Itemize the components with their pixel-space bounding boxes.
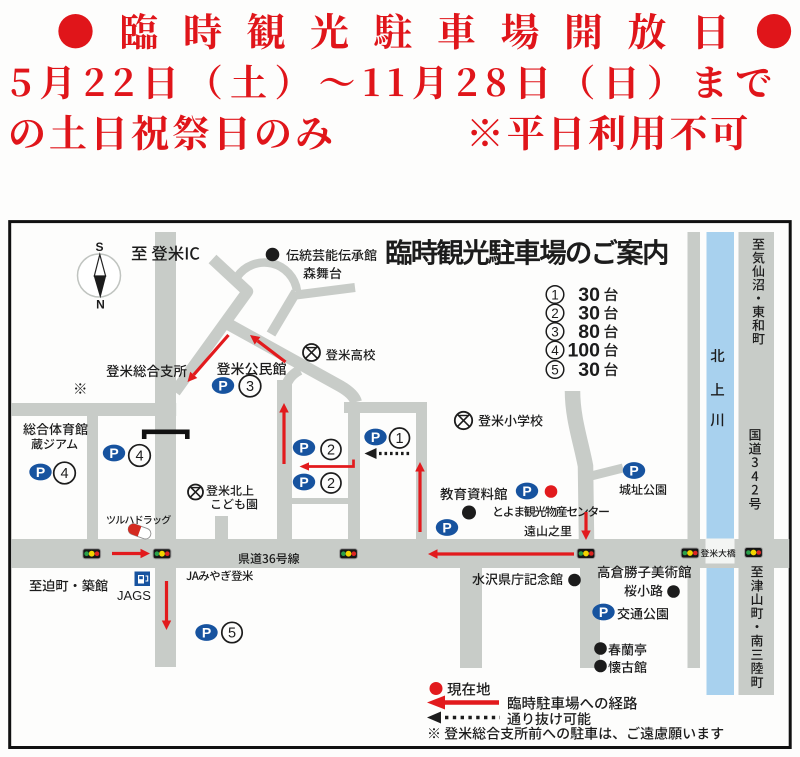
svg-text:高倉勝子美術館: 高倉勝子美術館 — [597, 561, 692, 581]
svg-text:P: P — [522, 483, 531, 499]
svg-text:遠山之里: 遠山之里 — [524, 523, 572, 540]
svg-text:P: P — [299, 440, 308, 456]
svg-text:P: P — [36, 464, 45, 480]
svg-text:JAみやぎ登米: JAみやぎ登米 — [186, 568, 254, 584]
svg-text:※: ※ — [73, 378, 88, 399]
svg-text:蔵ジアム: 蔵ジアム — [31, 436, 78, 453]
svg-text:P: P — [109, 445, 118, 461]
svg-text:登米小学校: 登米小学校 — [478, 411, 543, 430]
svg-text:3: 3 — [551, 324, 559, 339]
svg-text:至津山町・南三陸町: 至津山町・南三陸町 — [750, 562, 763, 691]
svg-text:P: P — [371, 429, 380, 445]
svg-text:教育資料館: 教育資料館 — [440, 483, 508, 503]
svg-text:4: 4 — [60, 466, 68, 482]
svg-text:N: N — [96, 298, 105, 312]
svg-text:北上川: 北上川 — [710, 345, 725, 430]
svg-text:登米大橋: 登米大橋 — [701, 547, 736, 560]
svg-text:とよま観光物産センター: とよま観光物産センター — [492, 503, 609, 520]
svg-text:2: 2 — [551, 306, 559, 321]
svg-text:臨時観光駐車場のご案内: 臨時観光駐車場のご案内 — [385, 231, 668, 271]
svg-text:の土日祝祭日のみ: の土日祝祭日のみ — [8, 103, 336, 158]
svg-text:●臨時観光駐車場開放日●: ●臨時観光駐車場開放日● — [56, 2, 800, 58]
svg-text:登米高校: 登米高校 — [326, 345, 377, 364]
svg-text:※ 登米総合支所前への駐車は、ご遠慮願います: ※ 登米総合支所前への駐車は、ご遠慮願います — [427, 724, 724, 744]
svg-text:※平日利用不可: ※平日利用不可 — [466, 103, 751, 158]
svg-text:P: P — [299, 474, 308, 490]
svg-text:5: 5 — [551, 362, 559, 377]
svg-text:5: 5 — [228, 626, 236, 642]
svg-text:現在地: 現在地 — [447, 679, 491, 700]
svg-text:春蘭亭: 春蘭亭 — [608, 640, 647, 659]
svg-text:至気仙沼・東和町: 至気仙沼・東和町 — [752, 234, 765, 348]
svg-text:城址公園: 城址公園 — [619, 481, 667, 498]
svg-text:30: 30 — [578, 359, 600, 381]
svg-text:5月22日（土）～11月28日（日）まで: 5月22日（土）～11月28日（日）まで — [10, 53, 779, 107]
svg-text:P: P — [629, 463, 638, 479]
svg-text:至迫町・築館: 至迫町・築館 — [29, 576, 108, 595]
svg-text:2: 2 — [327, 476, 335, 492]
svg-text:台: 台 — [604, 359, 619, 380]
svg-text:桜小路: 桜小路 — [624, 581, 663, 600]
svg-text:県道36号線: 県道36号線 — [238, 550, 300, 567]
svg-text:至 登米IC: 至 登米IC — [131, 241, 200, 265]
svg-text:P: P — [202, 625, 211, 641]
svg-text:1: 1 — [395, 431, 403, 447]
svg-text:P: P — [442, 520, 451, 536]
svg-text:4: 4 — [135, 449, 143, 465]
svg-text:伝統芸能伝承館: 伝統芸能伝承館 — [286, 245, 377, 264]
svg-text:ツルハドラッグ: ツルハドラッグ — [106, 512, 171, 527]
svg-text:こども園: こども園 — [210, 496, 258, 513]
svg-text:JAGS: JAGS — [117, 588, 151, 603]
svg-text:S: S — [95, 240, 103, 254]
svg-text:P: P — [599, 604, 608, 620]
svg-text:1: 1 — [551, 287, 559, 302]
svg-text:懐古館: 懐古館 — [608, 657, 647, 676]
svg-text:水沢県庁記念館: 水沢県庁記念館 — [472, 569, 563, 588]
svg-text:4: 4 — [551, 343, 559, 358]
svg-text:3: 3 — [246, 379, 254, 395]
svg-text:交通公園: 交通公園 — [617, 604, 669, 623]
svg-text:P: P — [218, 378, 227, 394]
svg-text:2: 2 — [327, 443, 335, 459]
svg-text:台: 台 — [604, 340, 619, 361]
svg-text:登米総合支所: 登米総合支所 — [106, 360, 187, 380]
svg-text:森舞台: 森舞台 — [303, 263, 342, 282]
